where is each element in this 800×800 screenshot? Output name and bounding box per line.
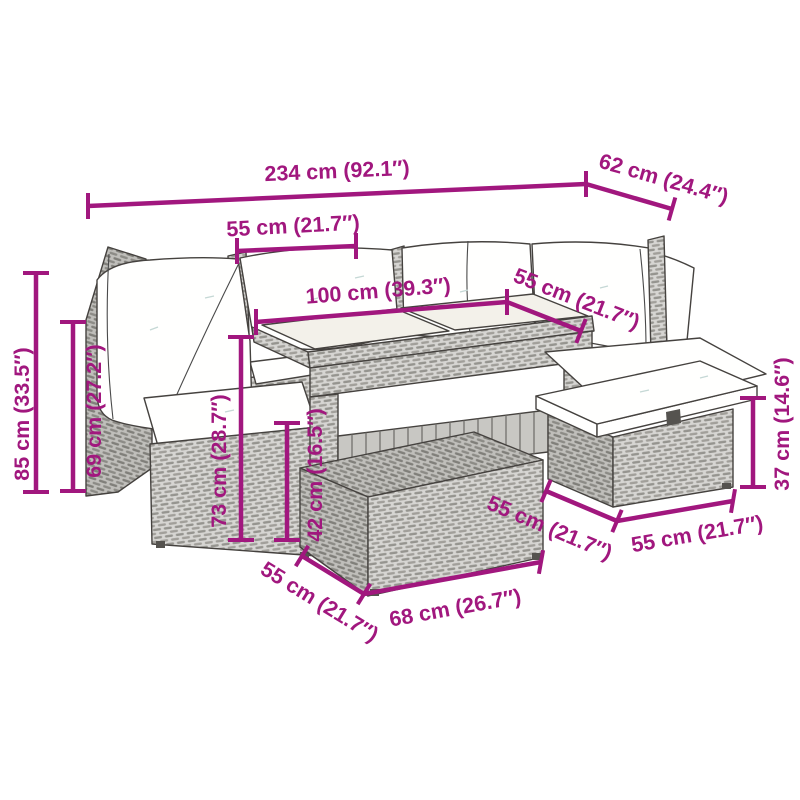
svg-text:37 cm (14.6″): 37 cm (14.6″) [770, 357, 794, 490]
product-dimension-diagram: 234 cm (92.1″) 62 cm (24.4″) 55 cm (21.7… [0, 0, 800, 800]
svg-text:85 cm (33.5″): 85 cm (33.5″) [10, 347, 34, 480]
rattan-base [150, 427, 318, 556]
svg-text:73 cm (28.7″): 73 cm (28.7″) [207, 394, 231, 527]
svg-text:42 cm (16.5″): 42 cm (16.5″) [303, 408, 327, 541]
foot [156, 541, 165, 548]
foot [722, 483, 731, 489]
clip-handle [666, 409, 681, 426]
svg-text:69 cm (27.2″): 69 cm (27.2″) [82, 344, 106, 477]
